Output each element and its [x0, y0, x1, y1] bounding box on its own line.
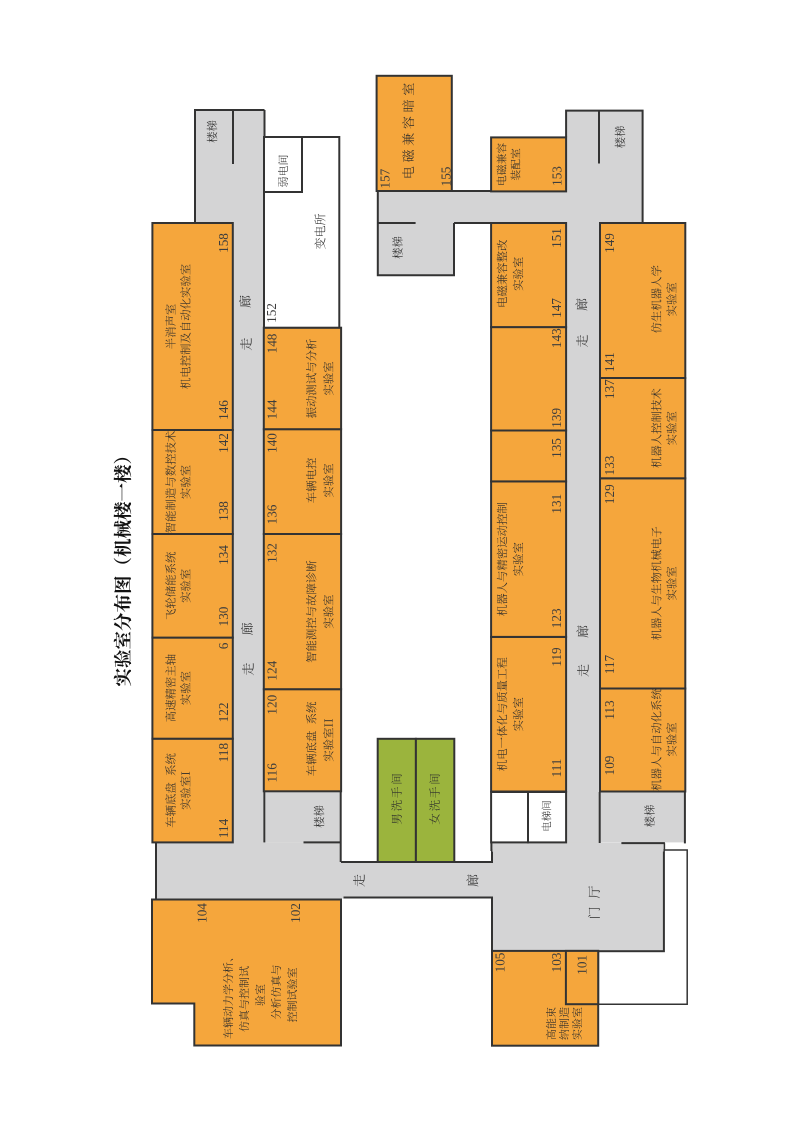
svg-text:117: 117	[602, 654, 617, 674]
svg-text:141: 141	[602, 352, 617, 372]
svg-text:119: 119	[549, 647, 564, 667]
svg-text:123: 123	[549, 608, 564, 628]
svg-text:134: 134	[216, 545, 231, 565]
svg-text:158: 158	[216, 233, 231, 253]
svg-text:152: 152	[264, 303, 279, 323]
svg-text:143: 143	[549, 328, 564, 348]
svg-text:155: 155	[438, 166, 453, 186]
svg-text:120: 120	[264, 694, 279, 714]
svg-text:146: 146	[216, 400, 231, 420]
svg-text:102: 102	[288, 903, 303, 923]
svg-text:104: 104	[195, 903, 210, 923]
svg-text:142: 142	[216, 433, 231, 453]
svg-text:124: 124	[264, 660, 279, 680]
svg-text:116: 116	[264, 763, 279, 783]
svg-text:129: 129	[602, 484, 617, 504]
svg-text:144: 144	[264, 399, 279, 419]
svg-text:114: 114	[216, 818, 231, 838]
svg-text:151: 151	[549, 228, 564, 248]
svg-text:149: 149	[602, 233, 617, 253]
svg-text:140: 140	[264, 433, 279, 453]
svg-text:132: 132	[264, 543, 279, 563]
svg-text:109: 109	[602, 755, 617, 775]
svg-text:111: 111	[549, 759, 564, 778]
svg-text:153: 153	[549, 166, 564, 186]
svg-text:157: 157	[377, 168, 392, 188]
svg-text:101: 101	[575, 955, 590, 975]
svg-text:138: 138	[216, 501, 231, 521]
svg-text:118: 118	[216, 743, 231, 763]
svg-text:137: 137	[602, 379, 617, 399]
svg-text:147: 147	[549, 298, 564, 318]
svg-text:136: 136	[264, 504, 279, 524]
svg-text:148: 148	[264, 333, 279, 353]
svg-text:130: 130	[216, 606, 231, 626]
svg-text:103: 103	[549, 952, 564, 972]
svg-text:131: 131	[549, 494, 564, 514]
svg-text:113: 113	[602, 700, 617, 720]
svg-text:6: 6	[216, 642, 231, 649]
svg-text:135: 135	[549, 438, 564, 458]
svg-text:105: 105	[493, 952, 508, 972]
svg-text:133: 133	[602, 455, 617, 475]
svg-text:122: 122	[216, 703, 231, 723]
svg-text:139: 139	[549, 408, 564, 428]
